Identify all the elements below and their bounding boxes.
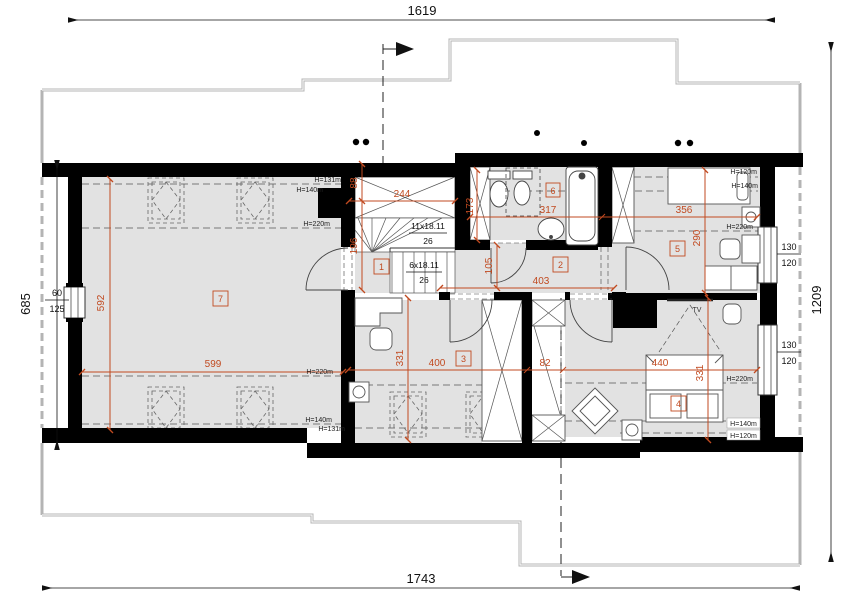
dim-bath-w: 173: [465, 197, 476, 214]
room-tag-1-label: 1: [379, 262, 384, 272]
dim-r7-w: 599: [205, 359, 222, 370]
dim-r4-len: 331: [695, 364, 706, 381]
duct-shaft: [612, 167, 634, 243]
dim-r5-len: 356: [676, 205, 693, 216]
room-tag-7-label: 7: [218, 294, 223, 304]
wall-bath-east: [598, 153, 612, 247]
dim-stair-open-w: 244: [394, 189, 411, 200]
window-rt-h: 120: [781, 258, 796, 268]
wall-top: [42, 163, 455, 177]
window-right-bottom-label: 130 120: [777, 340, 801, 366]
wall-stair-west-upper: [341, 163, 355, 247]
dim-r7-len: 592: [96, 294, 107, 311]
room-tag-4-label: 4: [676, 399, 681, 409]
hlabel-r4-140: H=140m: [730, 421, 757, 428]
hlabel-r5-220: H=220m: [726, 224, 753, 231]
hlabel-r7-bottom-220: H=220m: [306, 369, 333, 376]
wall-hall-stub-d: [612, 292, 626, 300]
wall-left-upper: [68, 177, 82, 287]
dim-bath-len: 317: [540, 205, 557, 216]
chimney-room4: [613, 300, 657, 328]
dim-r3-w: 400: [429, 358, 446, 369]
floor-plan-page: 11x18.11 26 6x18.11 26: [0, 0, 844, 600]
dresser-room5: [705, 266, 757, 290]
stair-lower-width: 26: [419, 275, 429, 285]
vent-dot: [581, 140, 587, 146]
floor-plan-drawing: 11x18.11 26 6x18.11 26: [0, 0, 844, 600]
side-table-room4: [723, 304, 741, 324]
dim-r5-w: 290: [692, 229, 703, 246]
wall-bottom-right: [640, 437, 803, 452]
wall-hall-stub-c: [565, 292, 570, 300]
wall-stair-west-lower: [341, 290, 355, 443]
section-arrow-bottom: [572, 570, 590, 584]
window-rb-h: 120: [781, 356, 796, 366]
dim-stair-len: 196: [349, 237, 360, 254]
room-tag-2-label: 2: [558, 260, 563, 270]
dim-top-label: 1619: [408, 3, 437, 18]
window-rt-w: 130: [781, 242, 796, 252]
toilet: [488, 171, 510, 207]
vent-dots: [353, 130, 693, 146]
wall-right-upper: [760, 167, 775, 227]
wall-wardrobe: [522, 292, 532, 443]
section-arrow-top: [396, 42, 414, 56]
stair-lower-label: 6x18.11: [409, 260, 439, 270]
wall-bottom-mid: [307, 443, 640, 458]
wall-bottom-left: [42, 428, 307, 443]
window-left: [64, 283, 85, 322]
radiator-room3: [349, 382, 369, 402]
bathtub: [566, 167, 598, 245]
hlabel-r7-top-140: H=140m: [296, 187, 323, 194]
hlabel-r4-120: H=120m: [730, 433, 757, 440]
room-tag-5-label: 5: [675, 244, 680, 254]
chair-room3: [370, 328, 392, 350]
hlabel-r7-top-220: H=220m: [303, 221, 330, 228]
hlabel-r7-bottom-140: H=140m: [305, 417, 332, 424]
window-right-bottom: [758, 325, 777, 395]
window-right-top: [758, 227, 777, 283]
vent-dot: [675, 140, 681, 146]
window-right-top-label: 130 120: [777, 242, 801, 268]
vent-dot: [353, 139, 359, 145]
wall-hall-stub-a: [439, 292, 450, 300]
hlabel-r7-bottom-131: H=131m: [318, 426, 345, 433]
hlabel-r4-220: H=220m: [726, 376, 753, 383]
wall-top-right: [455, 153, 803, 167]
washbasin: [538, 218, 564, 240]
stair-upper-width: 26: [423, 236, 433, 246]
wall-right-lower: [760, 395, 775, 440]
dim-right-label: 1209: [809, 286, 824, 315]
room-tag-3-label: 3: [461, 354, 466, 364]
stair-upper-label: 11x18.11: [411, 221, 445, 231]
dim-left-label: 685: [18, 293, 33, 315]
window-rb-w: 130: [781, 340, 796, 350]
vent-dot: [534, 130, 540, 136]
wall-left-lower: [68, 318, 82, 428]
room-tag-6-label: 6: [550, 186, 555, 196]
stool-room4: [622, 420, 642, 440]
dim-r4-w: 440: [652, 358, 669, 369]
dim-hall-len: 403: [533, 276, 550, 287]
hlabel-r5-120: H=120m: [730, 169, 757, 176]
dim-r3-len: 331: [395, 349, 406, 366]
chair-room5: [720, 239, 740, 259]
hlabel-r5-140: H=140m: [731, 183, 758, 190]
tv-label: TV: [693, 307, 702, 314]
dim-stair-open-h: 88: [349, 177, 360, 189]
desk-room5: [742, 235, 760, 263]
floor-room7: [82, 177, 341, 428]
dim-hall-w: 105: [484, 257, 495, 274]
wall-right-pier: [760, 283, 777, 325]
dim-bottom-label: 1743: [407, 571, 436, 586]
vent-dot: [687, 140, 693, 146]
dim-closet: 82: [539, 358, 551, 369]
wall-bath-south-a: [455, 240, 490, 250]
hlabel-r7-top-131: H=131m: [314, 177, 341, 184]
vent-dot: [363, 139, 369, 145]
stair-lower-flight: [390, 252, 455, 293]
